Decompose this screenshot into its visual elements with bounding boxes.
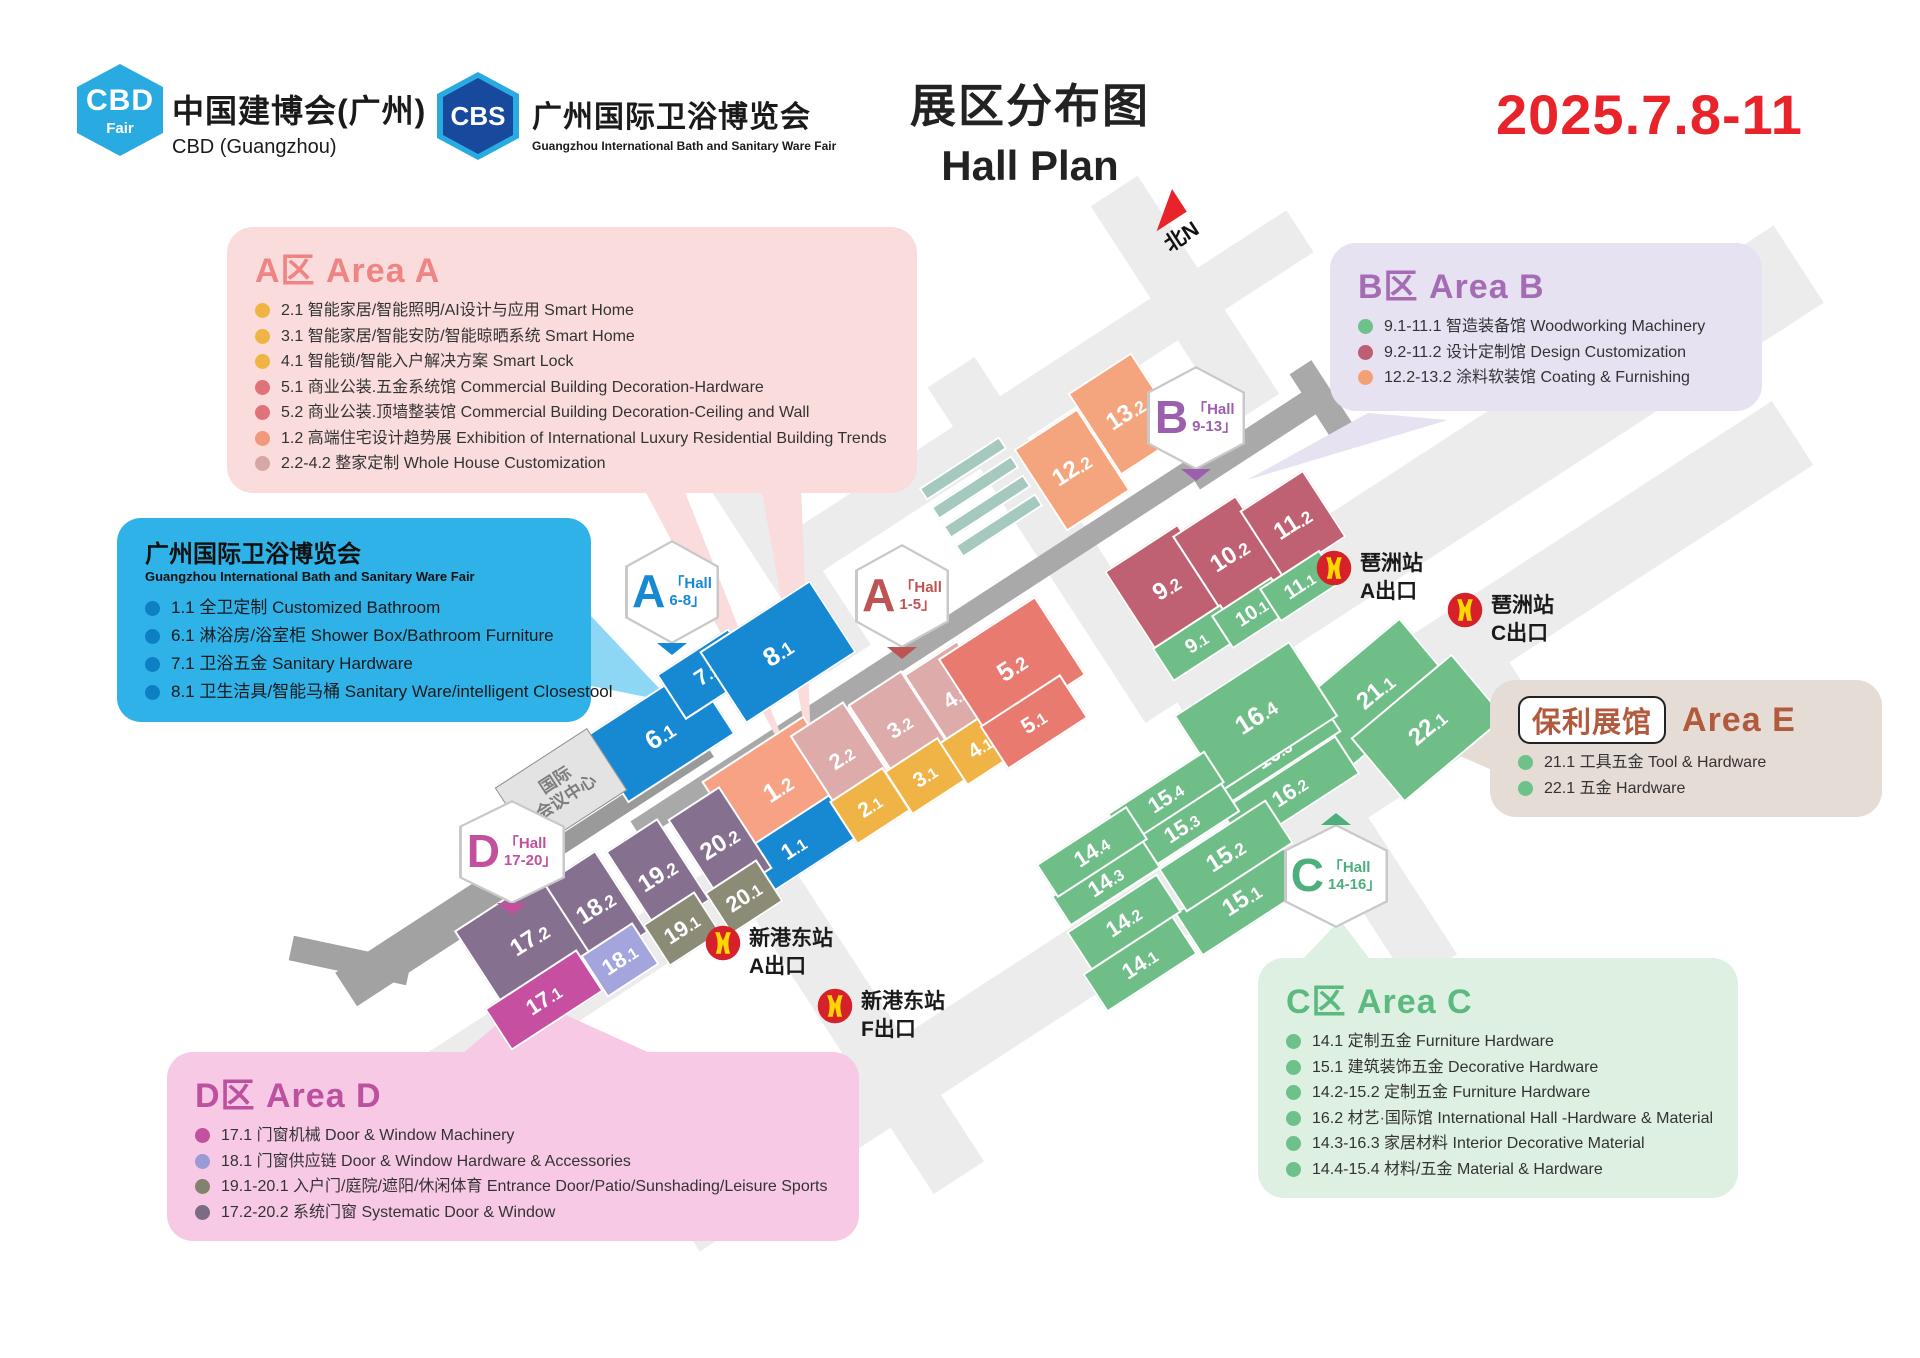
metro-icon (1316, 550, 1352, 586)
legend-dot-icon (145, 629, 160, 644)
hall-badge-range: 「Hall17-20」 (504, 835, 557, 870)
legend-item-label: 8.1 卫生洁具/智能马桶 Sanitary Ware/intelligent … (171, 678, 613, 706)
hall-badge-range: 「Hall14-16」 (1328, 859, 1381, 894)
metro-icon (1447, 592, 1483, 628)
hall-badge-content: A「Hall1-5」 (855, 544, 949, 648)
legend-item-label: 9.2-11.2 设计定制馆 Design Customization (1384, 340, 1686, 366)
legend-item: 1.1 全卫定制 Customized Bathroom (145, 594, 563, 622)
legend-dot-icon (255, 431, 270, 446)
legend-item-label: 14.1 定制五金 Furniture Hardware (1312, 1029, 1554, 1055)
page-title: 展区分布图 Hall Plan (880, 70, 1180, 190)
legend-item: 6.1 淋浴房/浴室柜 Shower Box/Bathroom Furnitur… (145, 622, 563, 650)
legend-item: 5.1 商业公装.五金系统馆 Commercial Building Decor… (255, 375, 889, 401)
legend-item: 4.1 智能锁/智能入户解决方案 Smart Lock (255, 349, 889, 375)
legend-dot-icon (1358, 345, 1373, 360)
cbs-logo-acronym: CBS (451, 101, 506, 132)
legend-item: 17.1 门窗机械 Door & Window Machinery (195, 1123, 831, 1149)
legend-item: 14.4-15.4 材料/五金 Material & Hardware (1286, 1157, 1710, 1183)
metro-exit: A出口 (1360, 578, 1423, 606)
legend-dot-icon (195, 1205, 210, 1220)
legend-dot-icon (195, 1179, 210, 1194)
legend-dot-icon (1286, 1111, 1301, 1126)
legend-item-label: 2.2-4.2 整家定制 Whole House Customization (281, 451, 606, 477)
legend-dot-icon (195, 1128, 210, 1143)
legend-dot-icon (255, 329, 270, 344)
legend-item: 14.2-15.2 定制五金 Furniture Hardware (1286, 1080, 1710, 1106)
legend-area-c: C区 Area C 14.1 定制五金 Furniture Hardware15… (1258, 958, 1738, 1198)
cbs-org-name: 广州国际卫浴博览会 Guangzhou International Bath a… (532, 92, 836, 153)
metro-exit: C出口 (1491, 620, 1554, 648)
legend-item: 5.2 商业公装.顶墙整装馆 Commercial Building Decor… (255, 400, 889, 426)
metro-station: 琶洲站A出口 (1316, 550, 1423, 607)
cbd-org-name: 中国建博会(广州) CBD (Guangzhou) (172, 86, 426, 159)
hall-badge-range: 「Hall1-5」 (899, 579, 942, 614)
legend-item: 17.2-20.2 系统门窗 Systematic Door & Window (195, 1200, 831, 1226)
legend-item-label: 4.1 智能锁/智能入户解决方案 Smart Lock (281, 349, 574, 375)
cbs-name-en: Guangzhou International Bath and Sanitar… (532, 139, 836, 153)
legend-item: 14.3-16.3 家居材料 Interior Decorative Mater… (1286, 1131, 1710, 1157)
legend-item-label: 19.1-20.1 入户门/庭院/遮阳/休闲体育 Entrance Door/P… (221, 1174, 828, 1200)
legend-area-e-title: 保利展馆 Area E (1518, 696, 1854, 744)
legend-area-b: B区 Area B 9.1-11.1 智造装备馆 Woodworking Mac… (1330, 243, 1762, 411)
fair-date: 2025.7.8-11 (1496, 82, 1803, 147)
metro-station: 新港东站F出口 (817, 988, 945, 1045)
page-title-cn: 展区分布图 (880, 70, 1180, 136)
legend-item-label: 14.4-15.4 材料/五金 Material & Hardware (1312, 1157, 1603, 1183)
legend-dot-icon (255, 456, 270, 471)
legend-area-e: 保利展馆 Area E 21.1 工具五金 Tool & Hardware22.… (1490, 680, 1882, 817)
legend-dot-icon (1518, 781, 1533, 796)
hall-badge-range: 「Hall6-8」 (669, 575, 712, 610)
poly-hall-badge: 保利展馆 (1518, 696, 1666, 744)
metro-station-name: 新港东站 (749, 925, 833, 953)
metro-station-label: 琶洲站A出口 (1360, 550, 1423, 607)
legend-area-c-title: C区 Area C (1286, 974, 1710, 1023)
legend-area-a: A区 Area A 2.1 智能家居/智能照明/AI设计与应用 Smart Ho… (227, 227, 917, 493)
legend-item-label: 16.2 材艺·国际馆 International Hall -Hardware… (1312, 1106, 1713, 1132)
metro-station-label: 新港东站A出口 (749, 925, 833, 982)
hall-badge-B-9-13[interactable]: B「Hall9-13」 (1147, 366, 1245, 470)
legend-dot-icon (145, 657, 160, 672)
hall-badge-content: A「Hall6-8」 (625, 540, 719, 644)
cbd-logo-word: Fair (106, 120, 134, 137)
legend-item-label: 22.1 五金 Hardware (1544, 776, 1685, 802)
metro-station-name: 琶洲站 (1491, 592, 1554, 620)
metro-station: 新港东站A出口 (705, 925, 833, 982)
hall-badge-content: D「Hall17-20」 (459, 800, 565, 904)
legend-dot-icon (255, 303, 270, 318)
legend-item-label: 12.2-13.2 涂料软装馆 Coating & Furnishing (1384, 365, 1690, 391)
legend-dot-icon (1286, 1085, 1301, 1100)
metro-station-label: 新港东站F出口 (861, 988, 945, 1045)
cbd-name-en: CBD (Guangzhou) (172, 136, 426, 159)
hall-badge-letter: A (862, 575, 895, 616)
legend-dot-icon (255, 354, 270, 369)
legend-item-label: 21.1 工具五金 Tool & Hardware (1544, 750, 1766, 776)
legend-bath-list: 1.1 全卫定制 Customized Bathroom6.1 淋浴房/浴室柜 … (145, 594, 563, 706)
legend-item-label: 9.1-11.1 智造装备馆 Woodworking Machinery (1384, 314, 1705, 340)
metro-station-label: 琶洲站C出口 (1491, 592, 1554, 649)
legend-area-e-title-text: Area E (1682, 701, 1796, 740)
legend-area-b-title: B区 Area B (1358, 259, 1734, 308)
hall-badge-D-17-20[interactable]: D「Hall17-20」 (459, 800, 565, 904)
legend-item: 3.1 智能家居/智能安防/智能晾晒系统 Smart Home (255, 324, 889, 350)
legend-item: 9.1-11.1 智造装备馆 Woodworking Machinery (1358, 314, 1734, 340)
legend-item: 9.2-11.2 设计定制馆 Design Customization (1358, 340, 1734, 366)
legend-area-d: D区 Area D 17.1 门窗机械 Door & Window Machin… (167, 1052, 859, 1241)
metro-station: 琶洲站C出口 (1447, 592, 1554, 649)
legend-dot-icon (195, 1154, 210, 1169)
legend-item-label: 14.2-15.2 定制五金 Furniture Hardware (1312, 1080, 1590, 1106)
legend-dot-icon (255, 405, 270, 420)
hall-badge-letter: A (632, 571, 665, 612)
cbs-logo-inner: CBS (443, 78, 513, 154)
legend-item: 7.1 卫浴五金 Sanitary Hardware (145, 650, 563, 678)
legend-item-label: 17.1 门窗机械 Door & Window Machinery (221, 1123, 514, 1149)
legend-area-d-list: 17.1 门窗机械 Door & Window Machinery18.1 门窗… (195, 1123, 831, 1225)
page-title-en: Hall Plan (880, 142, 1180, 190)
legend-dot-icon (1286, 1162, 1301, 1177)
hall-badge-content: B「Hall9-13」 (1147, 366, 1245, 470)
legend-item: 14.1 定制五金 Furniture Hardware (1286, 1029, 1710, 1055)
legend-area-d-title: D区 Area D (195, 1068, 831, 1117)
hall-badge-content: C「Hall14-16」 (1284, 824, 1388, 928)
legend-dot-icon (145, 685, 160, 700)
legend-item-label: 2.1 智能家居/智能照明/AI设计与应用 Smart Home (281, 298, 634, 324)
legend-bath-subtitle: Guangzhou International Bath and Sanitar… (145, 569, 563, 584)
legend-item-label: 17.2-20.2 系统门窗 Systematic Door & Window (221, 1200, 555, 1226)
legend-item-label: 5.1 商业公装.五金系统馆 Commercial Building Decor… (281, 375, 764, 401)
legend-item: 21.1 工具五金 Tool & Hardware (1518, 750, 1854, 776)
legend-dot-icon (1286, 1060, 1301, 1075)
legend-item: 18.1 门窗供应链 Door & Window Hardware & Acce… (195, 1149, 831, 1175)
hall-badge-A-1-5[interactable]: A「Hall1-5」 (855, 544, 949, 648)
legend-item-label: 18.1 门窗供应链 Door & Window Hardware & Acce… (221, 1149, 631, 1175)
legend-dot-icon (255, 380, 270, 395)
legend-item-label: 6.1 淋浴房/浴室柜 Shower Box/Bathroom Furnitur… (171, 622, 554, 650)
cbd-logo-acronym: CBD (86, 84, 154, 118)
legend-dot-icon (1358, 370, 1373, 385)
hall-badge-A-6-8[interactable]: A「Hall6-8」 (625, 540, 719, 644)
legend-area-b-list: 9.1-11.1 智造装备馆 Woodworking Machinery9.2-… (1358, 314, 1734, 391)
legend-item: 1.2 高端住宅设计趋势展 Exhibition of Internationa… (255, 426, 889, 452)
legend-area-e-list: 21.1 工具五金 Tool & Hardware22.1 五金 Hardwar… (1518, 750, 1854, 801)
metro-station-name: 新港东站 (861, 988, 945, 1016)
metro-exit: F出口 (861, 1016, 945, 1044)
legend-item: 12.2-13.2 涂料软装馆 Coating & Furnishing (1358, 365, 1734, 391)
cbs-name-cn: 广州国际卫浴博览会 (532, 92, 836, 136)
legend-item-label: 15.1 建筑装饰五金 Decorative Hardware (1312, 1055, 1598, 1081)
legend-item-label: 5.2 商业公装.顶墙整装馆 Commercial Building Decor… (281, 400, 809, 426)
metro-icon (817, 988, 853, 1024)
legend-item: 22.1 五金 Hardware (1518, 776, 1854, 802)
legend-item-label: 7.1 卫浴五金 Sanitary Hardware (171, 650, 413, 678)
hall-badge-C-14-16[interactable]: C「Hall14-16」 (1284, 824, 1388, 928)
legend-area-c-list: 14.1 定制五金 Furniture Hardware15.1 建筑装饰五金 … (1286, 1029, 1710, 1182)
legend-item: 15.1 建筑装饰五金 Decorative Hardware (1286, 1055, 1710, 1081)
legend-area-a-title: A区 Area A (255, 243, 889, 292)
legend-item-label: 1.2 高端住宅设计趋势展 Exhibition of Internationa… (281, 426, 887, 452)
metro-icon (705, 925, 741, 961)
legend-dot-icon (1358, 319, 1373, 334)
legend-dot-icon (1286, 1136, 1301, 1151)
legend-item: 8.1 卫生洁具/智能马桶 Sanitary Ware/intelligent … (145, 678, 563, 706)
hall-badge-letter: D (467, 831, 500, 872)
legend-dot-icon (1286, 1034, 1301, 1049)
legend-item: 2.1 智能家居/智能照明/AI设计与应用 Smart Home (255, 298, 889, 324)
legend-area-a-list: 2.1 智能家居/智能照明/AI设计与应用 Smart Home3.1 智能家居… (255, 298, 889, 477)
legend-item-label: 14.3-16.3 家居材料 Interior Decorative Mater… (1312, 1131, 1645, 1157)
metro-exit: A出口 (749, 953, 833, 981)
legend-dot-icon (145, 601, 160, 616)
legend-bath-fair: 广州国际卫浴博览会 Guangzhou International Bath a… (117, 518, 591, 722)
hall-badge-letter: C (1291, 855, 1324, 896)
legend-dot-icon (1518, 755, 1533, 770)
legend-item: 19.1-20.1 入户门/庭院/遮阳/休闲体育 Entrance Door/P… (195, 1174, 831, 1200)
legend-item: 2.2-4.2 整家定制 Whole House Customization (255, 451, 889, 477)
legend-item-label: 1.1 全卫定制 Customized Bathroom (171, 594, 440, 622)
metro-station-name: 琶洲站 (1360, 550, 1423, 578)
legend-item-label: 3.1 智能家居/智能安防/智能晾晒系统 Smart Home (281, 324, 635, 350)
hall-badge-range: 「Hall9-13」 (1192, 401, 1237, 436)
legend-bath-title: 广州国际卫浴博览会 (145, 534, 563, 569)
legend-item: 16.2 材艺·国际馆 International Hall -Hardware… (1286, 1106, 1710, 1132)
cbd-name-cn: 中国建博会(广州) (172, 86, 426, 132)
hall-badge-letter: B (1155, 397, 1188, 438)
